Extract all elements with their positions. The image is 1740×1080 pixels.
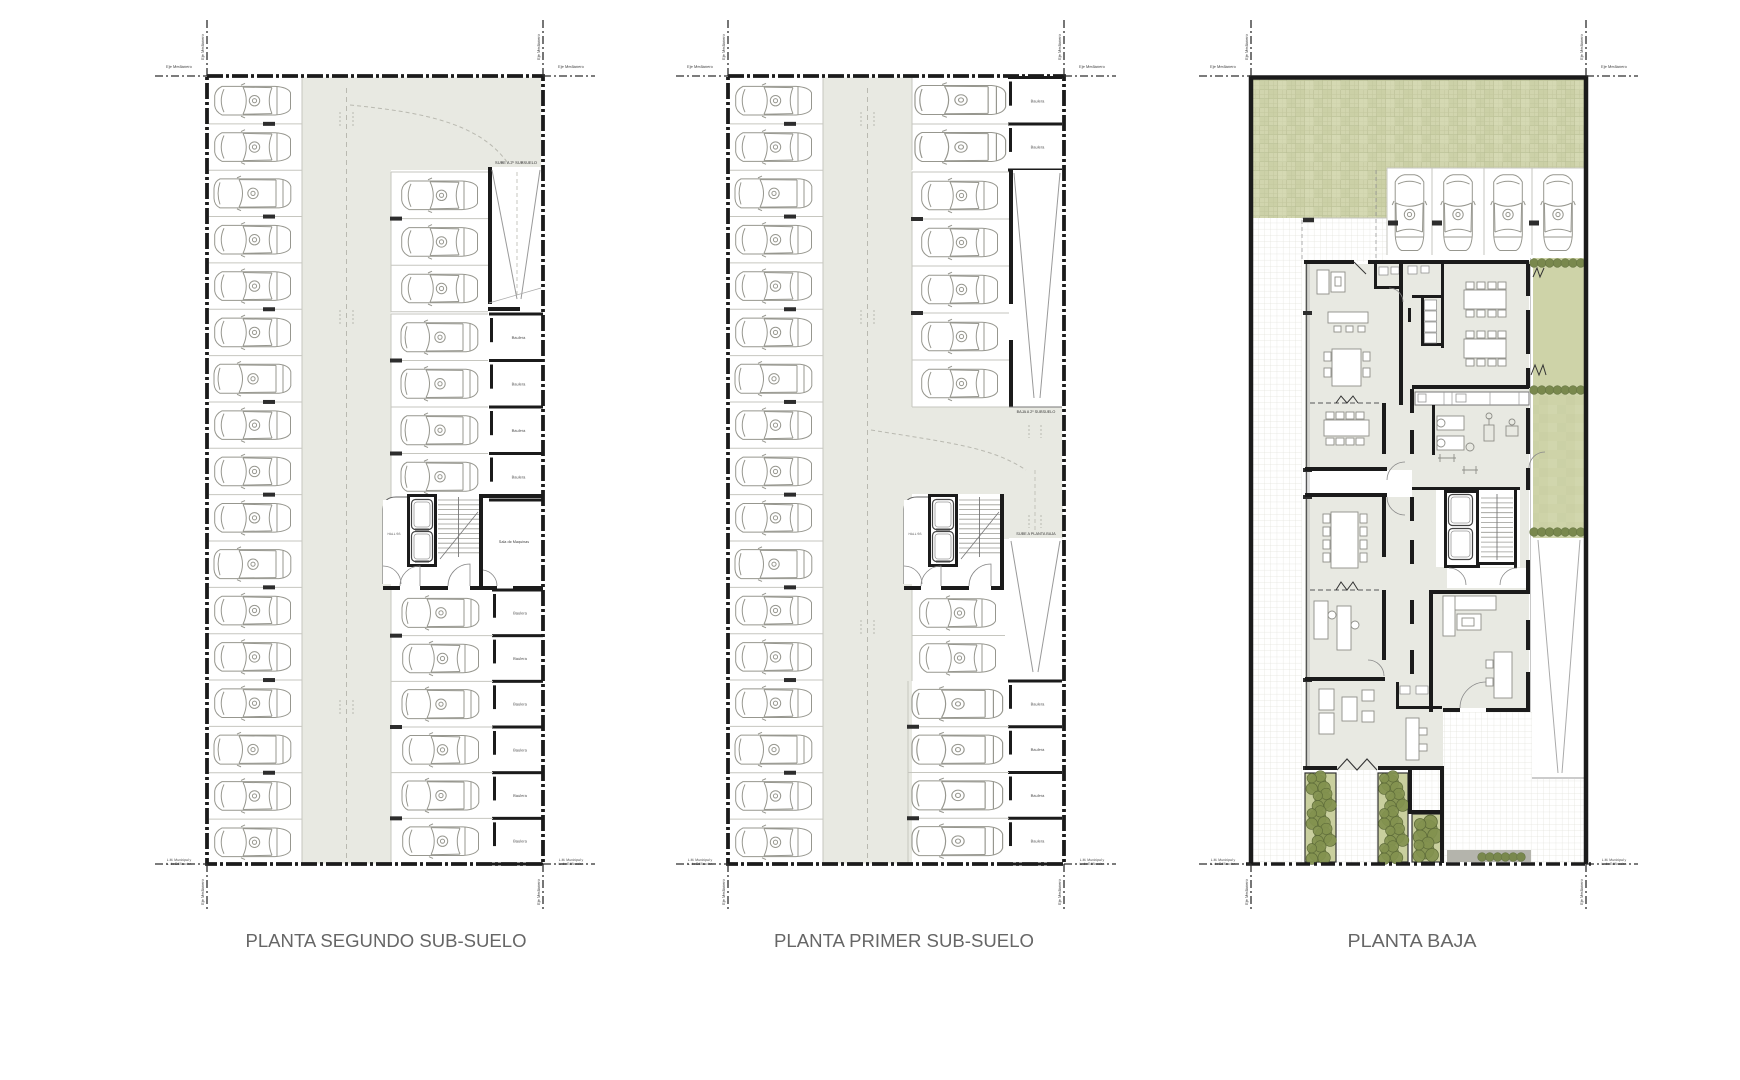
svg-text:Eje Medianero: Eje Medianero xyxy=(1601,64,1628,69)
svg-text:Eje Medianero: Eje Medianero xyxy=(1244,33,1249,60)
svg-text:Baulera: Baulera xyxy=(1031,145,1046,150)
svg-text:PLANTA BAJA: PLANTA BAJA xyxy=(1348,931,1477,951)
svg-text:Baulera: Baulera xyxy=(1031,793,1046,798)
svg-text:Baulera: Baulera xyxy=(512,474,527,479)
svg-text:Baulera: Baulera xyxy=(513,747,528,752)
svg-text:Eje Medianero: Eje Medianero xyxy=(558,64,585,69)
svg-text:Baulera: Baulera xyxy=(1031,701,1046,706)
svg-text:Baulera: Baulera xyxy=(513,610,528,615)
svg-text:Eje Medianero: Eje Medianero xyxy=(1579,33,1584,60)
svg-text:Baulera: Baulera xyxy=(513,793,528,798)
svg-text:Eje Medianero: Eje Medianero xyxy=(200,878,205,905)
svg-text:PLANTA PRIMER SUB-SUELO: PLANTA PRIMER SUB-SUELO xyxy=(774,931,1034,951)
svg-text:L. de Edificacion: L. de Edificacion xyxy=(688,862,713,866)
svg-text:SUBE A PLANTA BAJA: SUBE A PLANTA BAJA xyxy=(1016,532,1056,536)
svg-text:L. de Edificacion: L. de Edificacion xyxy=(559,862,584,866)
svg-text:Baulera: Baulera xyxy=(512,335,527,340)
svg-text:L. de Edificacion: L. de Edificacion xyxy=(167,862,192,866)
svg-text:Baulera: Baulera xyxy=(1031,839,1046,844)
svg-text:Baulera: Baulera xyxy=(512,428,527,433)
svg-text:Eje Medianero: Eje Medianero xyxy=(536,878,541,905)
svg-text:Eje Medianero: Eje Medianero xyxy=(1057,33,1062,60)
svg-text:Baulera: Baulera xyxy=(513,839,528,844)
svg-text:Eje Medianero: Eje Medianero xyxy=(1210,64,1237,69)
svg-text:Eje Medianero: Eje Medianero xyxy=(166,64,193,69)
svg-text:BAJA A 2º SUBSUELO: BAJA A 2º SUBSUELO xyxy=(1017,410,1056,414)
svg-text:Eje Medianero: Eje Medianero xyxy=(536,33,541,60)
svg-text:L. de Edificacion: L. de Edificacion xyxy=(1602,862,1627,866)
svg-text:L. de Edificacion: L. de Edificacion xyxy=(1211,862,1236,866)
svg-text:HALL SS: HALL SS xyxy=(909,532,922,536)
svg-text:Baulera: Baulera xyxy=(512,381,527,386)
svg-text:Baulera: Baulera xyxy=(513,656,528,661)
svg-text:Eje Medianero: Eje Medianero xyxy=(1579,878,1584,905)
svg-text:Eje Medianero: Eje Medianero xyxy=(1244,878,1249,905)
svg-text:Eje Medianero: Eje Medianero xyxy=(687,64,714,69)
svg-text:Eje Medianero: Eje Medianero xyxy=(721,878,726,905)
svg-text:Eje Medianero: Eje Medianero xyxy=(721,33,726,60)
svg-text:Eje Medianero: Eje Medianero xyxy=(1079,64,1106,69)
svg-text:Eje Medianero: Eje Medianero xyxy=(1057,878,1062,905)
svg-text:Eje Medianero: Eje Medianero xyxy=(200,33,205,60)
svg-text:Baulera: Baulera xyxy=(1031,747,1046,752)
svg-text:HALL SS: HALL SS xyxy=(388,532,401,536)
svg-text:L. de Edificacion: L. de Edificacion xyxy=(1080,862,1105,866)
svg-text:Baulera: Baulera xyxy=(1031,98,1046,103)
svg-text:Baulera: Baulera xyxy=(513,702,528,707)
svg-text:PLANTA SEGUNDO SUB-SUELO: PLANTA SEGUNDO SUB-SUELO xyxy=(246,931,527,951)
svg-text:Sala de Maquinas: Sala de Maquinas xyxy=(499,540,529,544)
svg-text:SUBE A 2º SUBSUELO: SUBE A 2º SUBSUELO xyxy=(495,160,537,165)
